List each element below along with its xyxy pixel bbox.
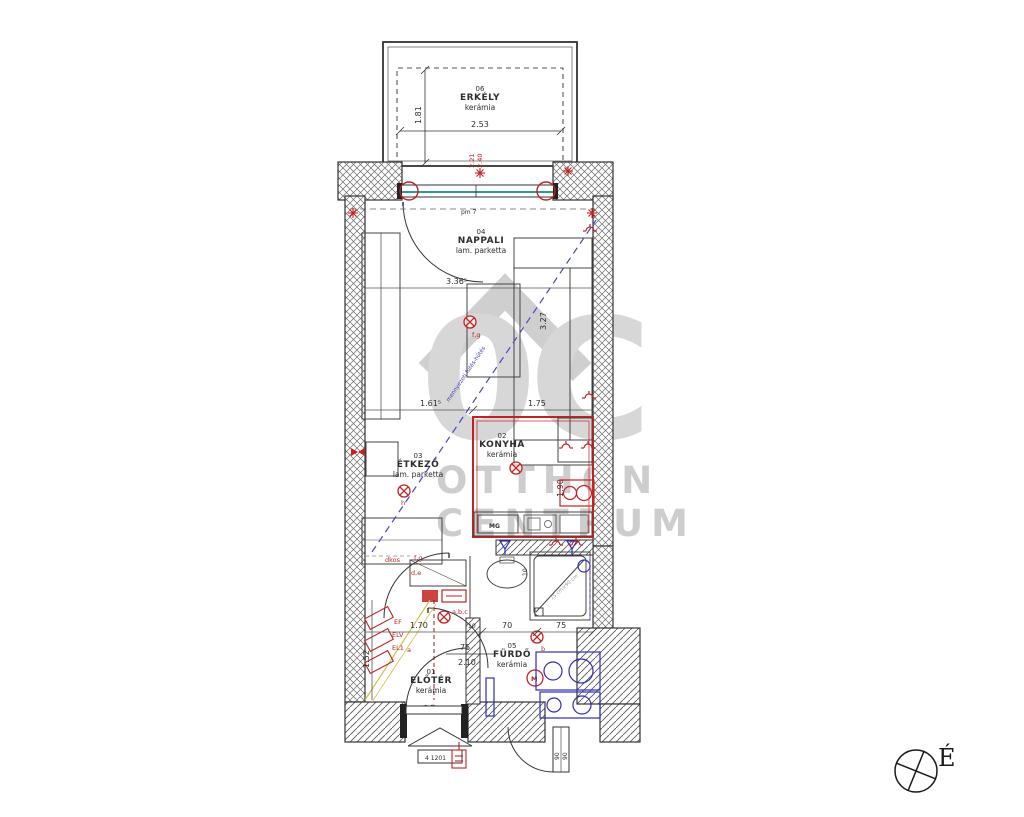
- room-label-konyha: 02 KONYHA kerámia: [479, 432, 525, 459]
- dim-door-1: 90: [554, 752, 561, 760]
- room-number: 01: [410, 668, 452, 676]
- ceiling-light-icon: [510, 462, 522, 474]
- room-number: 06: [460, 85, 500, 93]
- dim-hall-2: 2.10: [458, 658, 476, 667]
- label-h: h: [401, 499, 405, 507]
- room-label-erkely: 06 ERKÉLY kerámia: [460, 85, 500, 112]
- socket-icon: [559, 441, 573, 448]
- floorplan-canvas: 0C OTTHON CENTRUM: [0, 0, 1024, 817]
- dim-living-depth: 3.27: [539, 312, 548, 330]
- label-shower-size: 75 cm×90 cm: [549, 573, 579, 601]
- label-door-sign: 4 1201: [425, 755, 446, 762]
- washbasin: [487, 560, 527, 588]
- dim-window-height-1: 2.21: [468, 154, 476, 168]
- ceiling-light-icon: [398, 485, 410, 497]
- room-label-nappali: 04 NAPPALI lam. parketta: [456, 228, 506, 255]
- north-compass-icon: [889, 744, 944, 799]
- sofa: [514, 238, 592, 465]
- label-de: d,e: [411, 569, 421, 577]
- dim-shower: 10: [522, 568, 529, 576]
- section-line: mennyezeti fűtés-hűtés: [372, 220, 596, 552]
- dim-left-depth: 1.52: [362, 650, 371, 668]
- dim-bath-1: 1.70: [410, 621, 428, 630]
- dim-kitchen-width: 1.75: [528, 399, 546, 408]
- room-label-etkezo: 03 ÉTKEZŐ lam. parketta: [393, 452, 443, 479]
- dim-bath-3: 70: [502, 621, 512, 630]
- label-pm7: pm 7: [461, 209, 477, 216]
- room-label-furdo: 05 FÜRDŐ kerámia: [493, 642, 531, 669]
- room-floor: lam. parketta: [456, 246, 506, 255]
- dim-dining-width: 1.61⁵: [420, 399, 441, 408]
- room-floor: kerámia: [460, 103, 500, 112]
- label-abc: a,b,c: [452, 608, 468, 616]
- room-number: 02: [479, 432, 525, 440]
- room-floor: kerámia: [410, 686, 452, 695]
- ceiling-light-icon: [438, 611, 450, 623]
- north-label: É: [938, 744, 956, 772]
- wall-light-icon: [563, 166, 573, 176]
- room-number: 03: [393, 452, 443, 460]
- ceiling-light-icon: [464, 316, 476, 328]
- dim-bath-4: 75: [556, 621, 566, 630]
- room-number: 04: [456, 228, 506, 236]
- shower: [530, 552, 590, 620]
- dim-bath-2: 10: [468, 623, 476, 630]
- label-section-note: mennyezeti fűtés-hűtés: [445, 345, 487, 403]
- wall-light-icon: [348, 208, 358, 218]
- dim-balcony-width: 2.53: [471, 120, 489, 129]
- room-number: 05: [493, 642, 531, 650]
- room-floor: kerámia: [493, 660, 531, 669]
- room-floor: kerámia: [479, 450, 525, 459]
- label-fg1: f,g: [472, 331, 480, 339]
- dim-door-2: 90: [562, 752, 569, 760]
- label-dkos: dkos: [385, 556, 401, 564]
- room-name: ELŐTÉR: [410, 676, 452, 686]
- room-name: ERKÉLY: [460, 93, 500, 103]
- window-mark-icon: [475, 168, 485, 178]
- floorplan-drawing: 2.53 1.81: [0, 0, 1024, 817]
- room-name: NAPPALI: [456, 236, 506, 246]
- label-dishwasher: MG: [489, 523, 500, 530]
- desk: [362, 518, 442, 564]
- room-name: ÉTKEZŐ: [393, 460, 443, 470]
- drain-icon: [578, 560, 590, 572]
- dim-balcony-depth: 1.81: [414, 106, 423, 124]
- room-label-eloter: 01 ELŐTÉR kerámia: [410, 668, 452, 695]
- room-floor: lam. parketta: [393, 470, 443, 479]
- dim-hall-1: 75: [460, 643, 470, 652]
- ceiling-light-icon: [531, 631, 543, 643]
- dim-living-width: 3.36⁵: [446, 277, 467, 286]
- wall-light-icon: [587, 208, 597, 218]
- label-el1: EL1: [392, 644, 404, 652]
- room-name: KONYHA: [479, 440, 525, 450]
- hall-red-fixtures: [422, 590, 466, 602]
- room-name: FÜRDŐ: [493, 650, 531, 660]
- dim-window-height-2: 2.40: [476, 154, 484, 168]
- mid-dimension-line: 1.61⁵ 1.75: [365, 399, 593, 414]
- label-ef: EF: [394, 618, 402, 626]
